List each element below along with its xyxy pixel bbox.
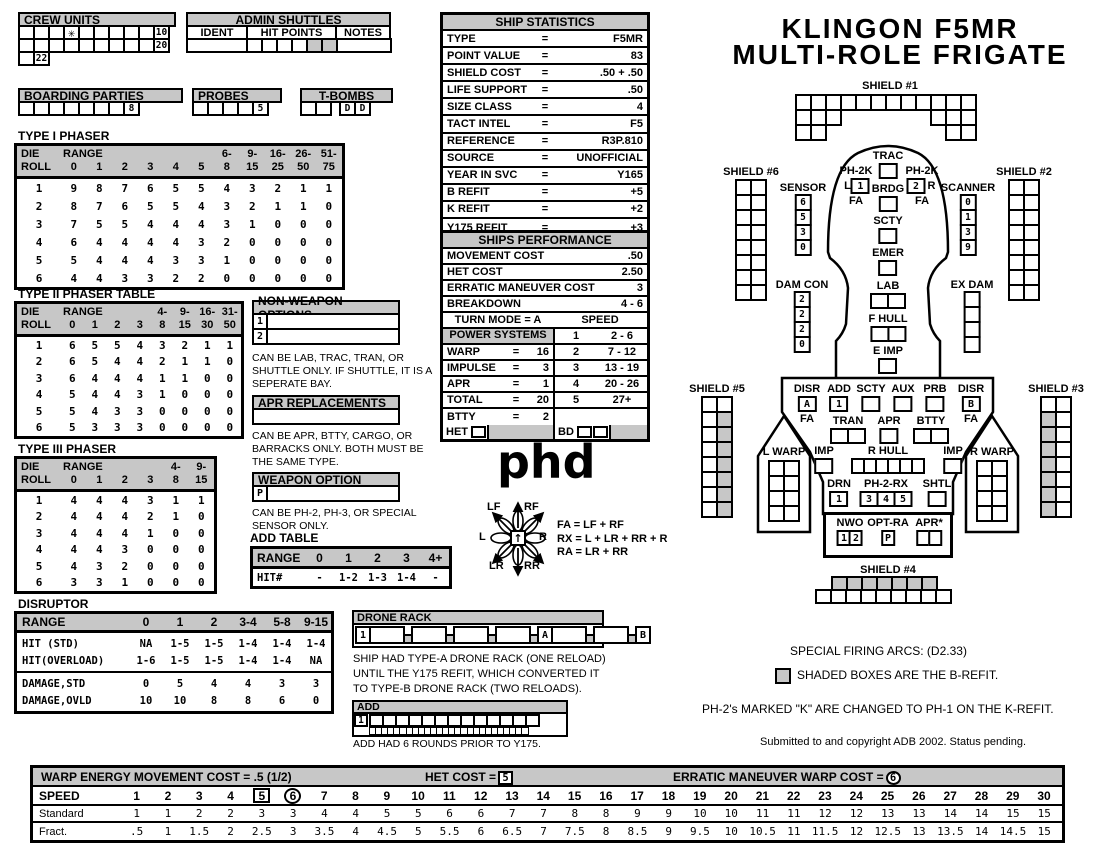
fract-value: 6.5 — [497, 825, 528, 838]
cell: 3 — [106, 421, 129, 434]
ex-dam-label: EX DAM — [951, 279, 994, 291]
shield6-grid — [735, 179, 767, 301]
col-header: 2 — [106, 319, 129, 332]
col-header: 15 — [174, 319, 197, 332]
col-header: 8 — [214, 161, 240, 174]
table-row: 464444320000 — [17, 233, 342, 251]
cell: 0 — [174, 388, 197, 401]
turn-mode-speed: 1 — [555, 330, 597, 342]
add-table-title: ADD TABLE — [250, 531, 318, 545]
apr-box — [879, 428, 898, 444]
admin-shuttles-panel: ADMIN SHUTTLES IDENT HIT POINTS NOTES — [186, 12, 391, 53]
cell: 0 — [316, 236, 342, 249]
cell: 1 — [265, 200, 291, 213]
dam-con-label: DAM CON — [776, 279, 829, 291]
shield4-bottom-row — [815, 589, 952, 604]
cell: 5 — [163, 200, 189, 213]
disr-b-label: DISR — [958, 383, 984, 395]
probes-panel: PROBES 5 — [192, 88, 282, 116]
phaser3-die: DIE — [21, 461, 61, 474]
shield5-grid — [701, 396, 733, 518]
col-header: 1 — [334, 551, 363, 565]
ph2k-left-box: 1 — [851, 178, 870, 194]
add-track-big-row — [368, 714, 566, 727]
shield1-label: SHIELD #1 — [862, 80, 918, 92]
table-row: HIT(OVERLOAD)1-61-51-51-41-4NA — [17, 652, 331, 669]
cell: 3 — [87, 576, 113, 589]
cell: NA — [299, 655, 333, 667]
apr-star-label: APR* — [915, 517, 943, 529]
shield4-label: SHIELD #4 — [860, 564, 916, 576]
cell: 0 — [189, 543, 215, 556]
cell: 4 — [84, 388, 107, 401]
t-bomb-box: D — [354, 101, 371, 116]
e-imp-system: E IMP — [873, 345, 903, 374]
fract-value: 14.5 — [997, 825, 1028, 838]
erratic-maneuver-value: 6 — [886, 771, 901, 785]
special-firing-arcs-note: SPECIAL FIRING ARCS: (D2.33) — [790, 644, 967, 658]
standard-value: 8 — [590, 807, 621, 820]
fract-value: 2 — [215, 825, 246, 838]
cell: 6 — [112, 200, 138, 213]
cell: 0 — [316, 254, 342, 267]
speed-number: 16 — [590, 789, 621, 803]
cell: 0 — [151, 421, 174, 434]
warp-box — [991, 505, 1008, 522]
table-row: 165543211 — [17, 337, 241, 354]
cell: 2 — [17, 355, 61, 368]
table-row: 287655432110 — [17, 197, 342, 215]
cell: 4 — [61, 543, 87, 556]
fract-value: 15 — [1029, 825, 1060, 838]
security2-box — [862, 396, 881, 412]
standard-value: 2 — [184, 807, 215, 820]
cell: 5 — [17, 560, 61, 573]
speed-number: 17 — [622, 789, 653, 803]
speed-number: 9 — [371, 789, 402, 803]
disruptor-table: RANGE0123-45-89-15 HIT (STD)NA1-51-51-41… — [14, 611, 334, 714]
shield1-grid — [795, 94, 977, 141]
l-warp-grid — [768, 460, 800, 522]
cell: 0 — [316, 200, 342, 213]
cell: 1 — [17, 494, 61, 507]
col-header: 1 — [87, 161, 113, 174]
cell: 4 — [87, 254, 113, 267]
cell: 4 — [129, 372, 152, 385]
fract-value: 13.5 — [935, 825, 966, 838]
f-hull-system: F HULL — [868, 313, 907, 342]
cell: 4 — [87, 543, 113, 556]
table-row: 554443310000 — [17, 251, 342, 269]
speed-number: 4 — [215, 789, 246, 803]
fract-value: 13 — [903, 825, 934, 838]
equals: = — [537, 169, 553, 181]
col-header: 0 — [61, 319, 84, 332]
col-header: 16- — [196, 306, 219, 319]
cell: - — [421, 572, 450, 584]
turn-mode-speed: 2 — [555, 346, 597, 358]
emer-system: EMER — [872, 247, 904, 276]
drone-box — [411, 626, 447, 644]
standard-value: 3 — [277, 807, 308, 820]
col-header: 5-8 — [265, 615, 299, 629]
table-row: DAMAGE,OVLD10108860 — [17, 692, 331, 709]
stat-value: 83 — [553, 50, 643, 62]
btty-label: BTTY — [917, 415, 946, 427]
cell: HIT(OVERLOAD) — [17, 655, 129, 667]
disruptor-head: RANGE0123-45-89-15 — [17, 614, 331, 633]
stat-label: B REFIT — [447, 186, 537, 198]
cell: 4 — [87, 527, 113, 540]
equals: = — [509, 378, 523, 390]
equals: = — [537, 203, 553, 215]
cell: 4 — [112, 510, 138, 523]
table-row: 364441100 — [17, 370, 241, 387]
sensor-track: SENSOR 6530 — [780, 182, 826, 256]
cell: 0 — [138, 560, 164, 573]
fract-value: 5 — [403, 825, 434, 838]
col-header: RANGE — [61, 306, 84, 319]
phaser1-roll: ROLL — [21, 161, 61, 174]
cell: 4 — [129, 339, 152, 352]
speed-number: 7 — [309, 789, 340, 803]
speed-number: 29 — [997, 789, 1028, 803]
turn-mode: TURN MODE = A — [443, 314, 553, 326]
col-header: 9- — [174, 306, 197, 319]
table-row: 653330000 — [17, 420, 241, 437]
cell: 3 — [61, 576, 87, 589]
add-track-note: ADD HAD 6 ROUNDS PRIOR TO Y175. — [353, 738, 593, 751]
lab-box — [887, 293, 906, 309]
cell: 5 — [106, 339, 129, 352]
cell: 4 — [163, 236, 189, 249]
power-value: 3 — [523, 362, 549, 374]
ph2k-left-label: PH-2K — [839, 165, 872, 177]
equals: = — [509, 346, 523, 358]
phaser1-die: DIE — [21, 148, 61, 161]
cell: 3 — [112, 543, 138, 556]
cell: 0 — [196, 421, 219, 434]
ships-performance-panel: SHIPS PERFORMANCE MOVEMENT COST.50 HET C… — [440, 230, 650, 442]
cell: 0 — [214, 272, 240, 285]
cell: 1 — [17, 182, 61, 195]
cell: 8 — [61, 200, 87, 213]
drone-rack-note: SHIP HAD TYPE-A DRONE RACK (ONE RELOAD) … — [353, 652, 608, 697]
cell: 2 — [151, 355, 174, 368]
stat-label: TACT INTEL — [447, 118, 537, 130]
standard-value: 14 — [935, 807, 966, 820]
stat-value: +2 — [553, 203, 643, 215]
standard-value: 9 — [653, 807, 684, 820]
col-header: 9- — [189, 461, 215, 474]
arc-fa: FA — [849, 195, 863, 207]
cell: 4 — [84, 405, 107, 418]
speed-range: 2 - 6 — [597, 330, 647, 342]
arc-label-lf: LF — [487, 501, 500, 513]
cell: 0 — [265, 254, 291, 267]
stat-label: SIZE CLASS — [447, 101, 537, 113]
drone-box — [593, 626, 629, 644]
arc-fa: FA — [915, 195, 929, 207]
slot-cell — [266, 328, 400, 345]
phaser2-head-top: RANGE4-9-16-31- — [61, 306, 241, 319]
phaser3-head-top: RANGE4-9- — [61, 461, 214, 474]
cell: 4 — [17, 543, 61, 556]
cell: NA — [129, 638, 163, 650]
emer-box — [879, 260, 898, 276]
perf-value: 4 - 6 — [621, 298, 643, 310]
side-letter: R — [928, 180, 936, 192]
bridge-label: BRDG — [872, 183, 904, 195]
col-header: 4- — [151, 306, 174, 319]
cell: 1-5 — [163, 655, 197, 667]
stat-label: POINT VALUE — [447, 50, 537, 62]
svg-text:↑: ↑ — [513, 532, 522, 545]
table-row: 6331000 — [17, 575, 214, 592]
non-weapon-options-panel: NON-WEAPON OPTIONS 1 2 — [252, 300, 400, 345]
crew-box: 20 — [153, 38, 170, 53]
col-header — [189, 148, 215, 161]
prb-system: PRB — [923, 383, 946, 412]
fract-value: 8.5 — [622, 825, 653, 838]
cell: 0 — [219, 372, 242, 385]
col-header: 1 — [163, 615, 197, 629]
cell: 4 — [61, 272, 87, 285]
cell: 1 — [174, 372, 197, 385]
phaser3-roll: ROLL — [21, 474, 61, 487]
cell: 0 — [163, 543, 189, 556]
speed-range: 27+ — [597, 394, 647, 406]
add-track-panel: ADD 1 — [352, 700, 568, 737]
standard-value: 15 — [997, 807, 1028, 820]
col-header — [138, 148, 164, 161]
cell: 1-4 — [265, 655, 299, 667]
ex-dam-track: EX DAM — [951, 279, 994, 353]
speed-number: 18 — [653, 789, 684, 803]
opt-ra-system: OPT-RA P — [867, 517, 909, 546]
fract-values-row: .511.522.533.544.555.566.577.588.599.510… — [121, 825, 1060, 838]
col-header: 4+ — [421, 551, 450, 565]
cell: 1 — [163, 510, 189, 523]
table-row: 644332200000 — [17, 269, 342, 287]
shaded-boxes-note: SHADED BOXES ARE THE B-REFIT. — [775, 668, 998, 684]
speed-number: 30 — [1028, 789, 1059, 803]
ph2k-right-box: 2 — [907, 178, 926, 194]
opt-ra-box: P — [881, 530, 895, 546]
standard-value: 5 — [371, 807, 402, 820]
col-header: 30 — [196, 319, 219, 332]
cell: 2 — [174, 339, 197, 352]
cell: 4 — [138, 236, 164, 249]
ssd-sheet: CREW UNITS ✳10 20 22 ADMIN SHUTTLES IDEN… — [0, 0, 1100, 850]
col-header — [84, 306, 107, 319]
cell: 5 — [163, 678, 197, 690]
col-header: 15 — [189, 474, 215, 487]
ph2k-right-label: PH-2K — [905, 165, 938, 177]
cell: 0 — [174, 405, 197, 418]
col-header: 50 — [219, 319, 242, 332]
col-header: 3 — [392, 551, 421, 565]
shield3-label: SHIELD #3 — [1028, 383, 1084, 395]
add-table-head: RANGE01234+ — [253, 549, 449, 569]
crew-units-panel: CREW UNITS ✳10 20 22 — [18, 12, 176, 66]
stat-label: SHIELD COST — [447, 67, 537, 79]
fract-value: 12.5 — [872, 825, 903, 838]
speed-chart-header: WARP ENERGY MOVEMENT COST = .5 (1/2) HET… — [33, 768, 1062, 787]
add-track-title: ADD — [354, 702, 566, 714]
tran-box — [847, 428, 866, 444]
sensor-label: SENSOR — [780, 182, 826, 194]
cell: 2 — [240, 200, 266, 213]
col-header: 16- — [265, 148, 291, 161]
cell: 2 — [138, 510, 164, 523]
col-header: 2 — [197, 615, 231, 629]
col-header: 3 — [138, 474, 164, 487]
r-warp-label: R WARP — [970, 446, 1014, 458]
cell: 3 — [106, 405, 129, 418]
power-label: TOTAL — [447, 394, 509, 406]
cell: 4 — [129, 355, 152, 368]
equals: = — [509, 362, 523, 374]
fract-value: 12 — [841, 825, 872, 838]
shield2-grid — [1008, 179, 1040, 301]
trac-label: TRAC — [873, 150, 904, 162]
cell: 1-2 — [334, 572, 363, 584]
cell: 3 — [163, 254, 189, 267]
cell: 1 — [174, 355, 197, 368]
cell: 2 — [163, 272, 189, 285]
cell: DAMAGE,STD — [17, 678, 129, 690]
cell: 4 — [106, 388, 129, 401]
power-label: APR — [447, 378, 509, 390]
equals: = — [537, 50, 553, 62]
standard-value: 4 — [309, 807, 340, 820]
table-row: 375544431000 — [17, 215, 342, 233]
cell: 5 — [61, 421, 84, 434]
cell: 0 — [291, 236, 317, 249]
arc-label-l: L — [479, 531, 486, 543]
fract-value: 1.5 — [184, 825, 215, 838]
shtl-system: SHTL — [923, 478, 952, 507]
apr-replacements-note: CAN BE APR, BTTY, CARGO, OR BARRACKS ONL… — [252, 430, 432, 469]
cell: 4 — [112, 494, 138, 507]
cell: 1 — [316, 182, 342, 195]
power-value: 16 — [523, 346, 549, 358]
apr-replacements-panel: APR REPLACEMENTS — [252, 395, 400, 425]
cell: 5 — [61, 388, 84, 401]
cell: 0 — [265, 236, 291, 249]
cell: 0 — [138, 576, 164, 589]
stat-label: YEAR IN SVC — [447, 169, 537, 181]
drone-box — [369, 626, 405, 644]
cell: 5 — [61, 405, 84, 418]
shield-box — [1055, 501, 1072, 518]
crew-units-row3: 22 — [18, 51, 176, 66]
col-header — [106, 306, 129, 319]
btty-box — [930, 428, 949, 444]
r-hull-box — [911, 458, 925, 474]
col-header: 2 — [112, 161, 138, 174]
disr-b-box: B — [962, 396, 981, 412]
speed-number: 11 — [434, 789, 465, 803]
cell: 6 — [61, 355, 84, 368]
admin-notes-cell — [336, 38, 392, 53]
speed-number: 28 — [966, 789, 997, 803]
cell: 6 — [61, 236, 87, 249]
speed-number: 21 — [747, 789, 778, 803]
imp-right-box — [944, 458, 963, 474]
cell: 1 — [17, 339, 61, 352]
equals: = — [509, 411, 523, 423]
probe-box: 5 — [252, 101, 269, 116]
scanner-label: SCANNER — [941, 182, 995, 194]
col-header: 0 — [61, 474, 87, 487]
security2-label: SCTY — [856, 383, 885, 395]
aux-box — [893, 396, 912, 412]
speed-number: 6 — [284, 788, 301, 804]
cell: 4 — [189, 200, 215, 213]
cell: 1 — [189, 494, 215, 507]
table-row: 3444100 — [17, 525, 214, 542]
col-header: RANGE — [61, 148, 87, 161]
shaded-legend-box — [775, 668, 791, 684]
phaser2-table: DIE ROLL RANGE4-9-16-31- 01238153050 165… — [14, 301, 244, 439]
drone-box — [453, 626, 489, 644]
bridge-box — [878, 196, 897, 212]
cell: 3 — [129, 405, 152, 418]
speed-chart: WARP ENERGY MOVEMENT COST = .5 (1/2) HET… — [30, 765, 1065, 843]
cell: 6 — [61, 372, 84, 385]
stat-label: LIFE SUPPORT — [447, 84, 537, 96]
cell: 5 — [189, 182, 215, 195]
cell: 1 — [151, 388, 174, 401]
cell: HIT# — [253, 572, 305, 584]
col-header: 15 — [240, 161, 266, 174]
arc-label-rf: RF — [524, 501, 539, 513]
cell: 7 — [87, 200, 113, 213]
cell: 4 — [112, 236, 138, 249]
erratic-maneuver-label: ERRATIC MANEUVER WARP COST = — [673, 770, 884, 784]
trac-system: TRAC — [873, 150, 904, 179]
lab-label: LAB — [877, 280, 900, 292]
cell: 1 — [291, 200, 317, 213]
cell: 3 — [17, 218, 61, 231]
shield-box — [810, 124, 827, 141]
power-systems-header: POWER SYSTEMS — [443, 329, 553, 345]
cell: 4 — [138, 254, 164, 267]
add-system: ADD 1 — [827, 383, 851, 412]
fract-value: 4 — [340, 825, 371, 838]
side-letter: L — [844, 180, 851, 192]
col-header: RANGE — [17, 615, 129, 629]
fract-value: 10 — [716, 825, 747, 838]
col-header: 0 — [305, 551, 334, 565]
col-header: 9- — [240, 148, 266, 161]
add-system-label: ADD — [827, 383, 851, 395]
fract-value: 8 — [590, 825, 621, 838]
speed-number: 5 — [253, 788, 270, 803]
standard-value: 13 — [903, 807, 934, 820]
disr-a-box: A — [798, 396, 817, 412]
ships-performance-title: SHIPS PERFORMANCE — [443, 233, 647, 249]
cell: 0 — [219, 388, 242, 401]
perf-value: 2.50 — [622, 266, 643, 278]
scanner-box: 9 — [960, 239, 977, 256]
fract-value: 3.5 — [309, 825, 340, 838]
aux-label: AUX — [891, 383, 914, 395]
stat-value: .50 + .50 — [553, 67, 643, 79]
col-header: 25 — [265, 161, 291, 174]
